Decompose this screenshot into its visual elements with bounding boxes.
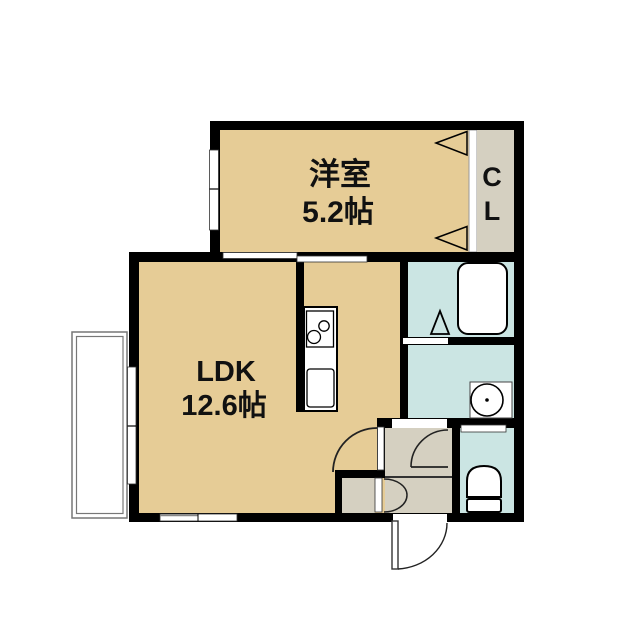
entrance-door-swing-arc xyxy=(398,523,447,569)
sliding-door-panel xyxy=(223,253,297,259)
bathtub-icon xyxy=(458,263,507,334)
closet-door-track xyxy=(469,130,477,252)
kitchen-sink-icon xyxy=(307,369,334,407)
storage-bifold-panel xyxy=(375,478,382,512)
entrance-opening xyxy=(393,514,447,522)
closet-label-bottom: L xyxy=(484,196,501,226)
ldk-label: LDK xyxy=(196,356,256,388)
kitchen-unit xyxy=(304,307,337,411)
bath-door-opening xyxy=(403,338,448,344)
ldk-door-leaf xyxy=(378,427,385,470)
western-room-label: 洋室 xyxy=(309,157,371,192)
window-symbol-west-room xyxy=(210,150,219,230)
washroom-door-opening xyxy=(392,419,447,428)
stove-burner-icon xyxy=(319,321,329,331)
western-room-size-label: 5.2帖 xyxy=(302,196,374,229)
wall-segment xyxy=(210,121,524,130)
ldk-size-label: 12.6帖 xyxy=(181,389,266,422)
toilet-door-panel xyxy=(461,425,506,432)
storage-floor xyxy=(342,478,375,513)
closet-label-top: C xyxy=(482,162,502,192)
entrance-hall-floor xyxy=(385,428,452,513)
balcony-outer-rail xyxy=(72,332,127,518)
balcony xyxy=(72,332,127,518)
stove-burner-icon xyxy=(308,331,321,344)
wall-segment xyxy=(335,478,342,513)
wall-segment xyxy=(452,428,460,513)
entrance-door-leaf xyxy=(392,521,398,569)
wash-basin-icon xyxy=(470,382,512,418)
floorplan-canvas: 洋室 5.2帖 LDK 12.6帖 C L xyxy=(0,0,640,640)
sliding-door-panel xyxy=(297,256,367,262)
toilet-icon xyxy=(467,466,501,512)
wall-segment xyxy=(514,121,524,522)
kitchen-partition-wall xyxy=(296,255,304,412)
wall-segment xyxy=(335,470,385,478)
floorplan-drawing: 洋室 5.2帖 LDK 12.6帖 C L xyxy=(0,0,640,640)
